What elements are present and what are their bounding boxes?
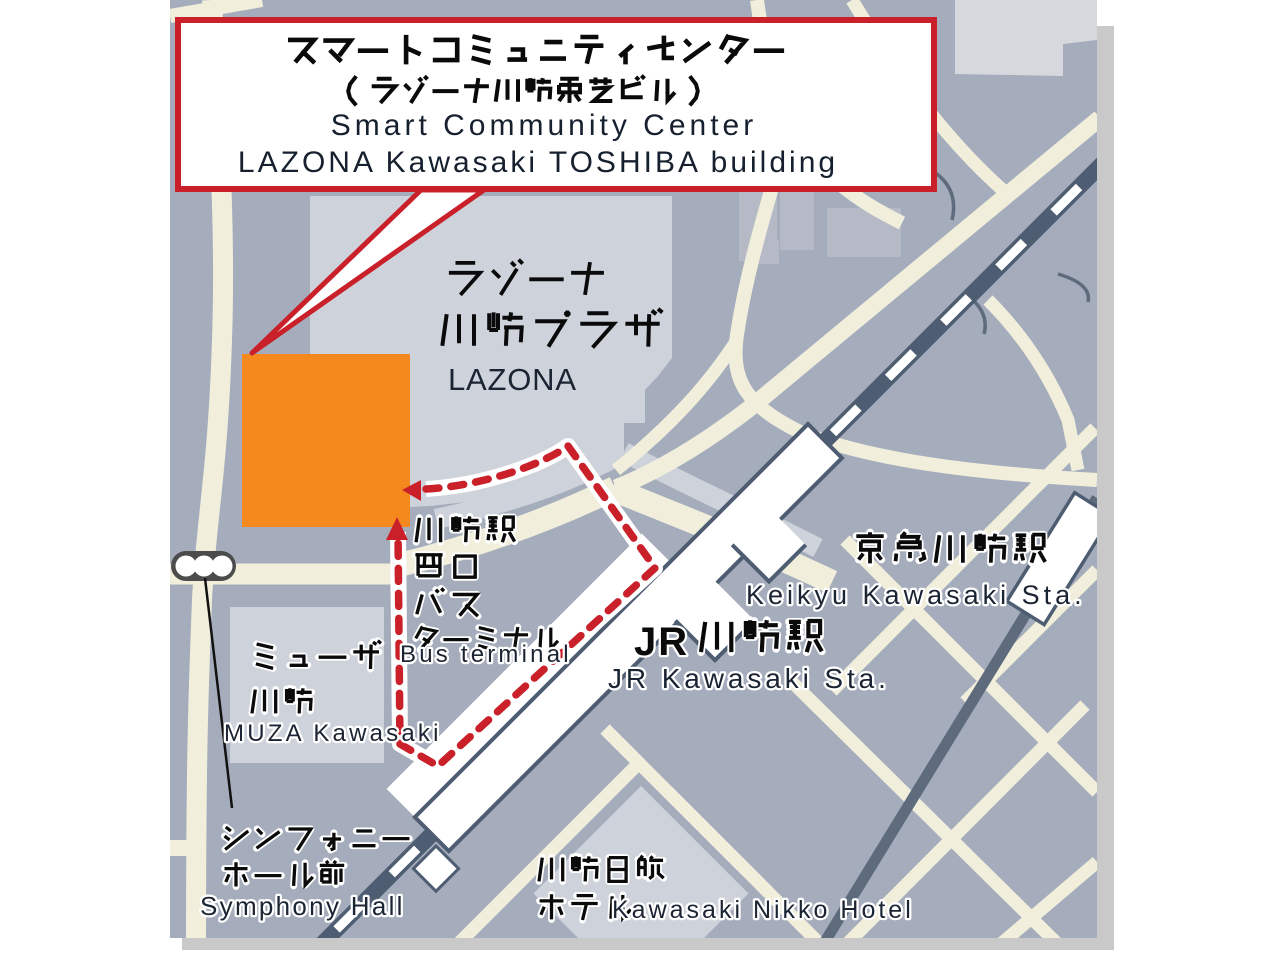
svg-text:Smart Community Center: Smart Community Center [331,109,757,142]
svg-text:JR Kawasaki Sta.: JR Kawasaki Sta. [608,663,890,694]
svg-text:LAZONA: LAZONA [448,362,577,397]
svg-text:Kawasaki Nikko Hotel: Kawasaki Nikko Hotel [612,896,914,924]
svg-text:Bus terminal: Bus terminal [400,641,572,668]
svg-text:Keikyu Kawasaki Sta.: Keikyu Kawasaki Sta. [746,580,1086,610]
svg-text:JR: JR [634,620,689,664]
svg-text:LAZONA Kawasaki TOSHIBA buildi: LAZONA Kawasaki TOSHIBA building [238,146,838,179]
svg-text:MUZA Kawasaki: MUZA Kawasaki [224,720,442,747]
svg-text:Symphony Hall: Symphony Hall [200,891,405,921]
